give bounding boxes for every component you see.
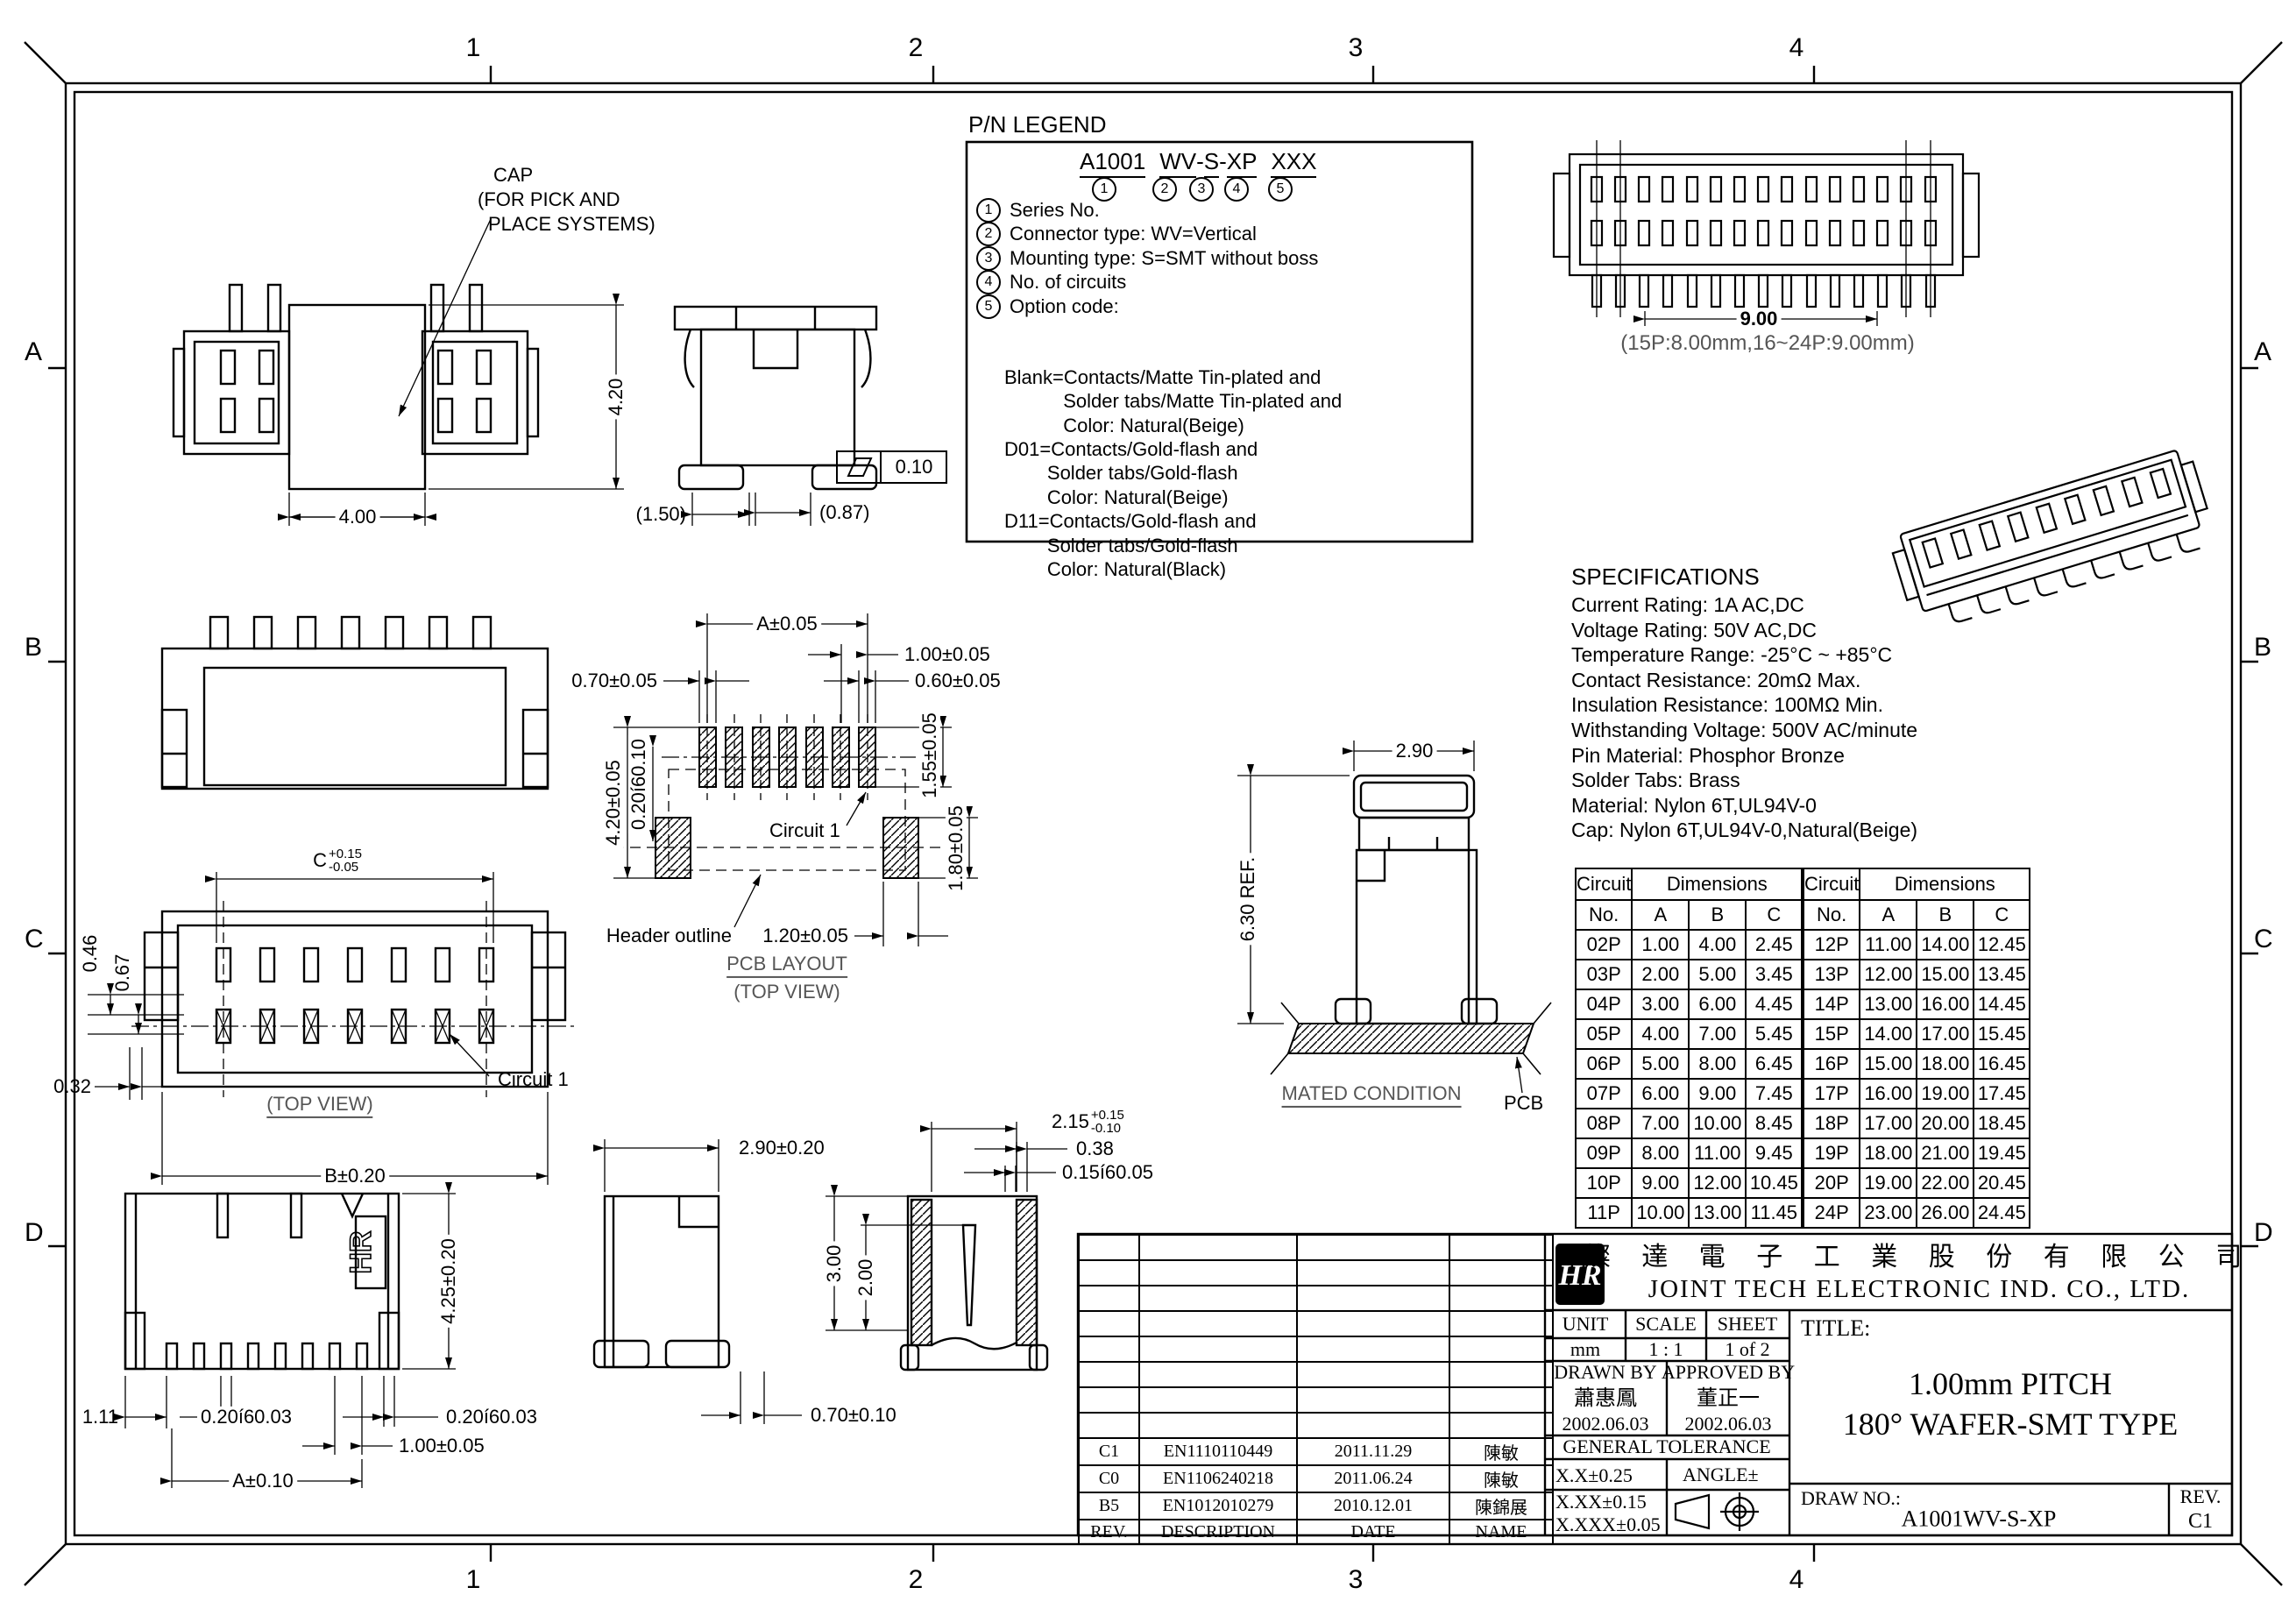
bottom-side-view: [594, 1196, 729, 1367]
long-connector-view: [1554, 140, 1979, 317]
flatness-value: 0.10: [896, 457, 933, 478]
top-view: [145, 911, 565, 1087]
dim-note: (15P:8.00mm,16~24P:9.00mm): [1620, 332, 1915, 355]
bottom-section-view: [901, 1196, 1047, 1370]
dim-label: 9.00: [1737, 308, 1782, 330]
table-row: 09P8.0011.009.45: [1576, 1138, 1802, 1168]
zone-letter: A: [2254, 337, 2271, 367]
table-row: 07P6.009.007.45: [1576, 1079, 1802, 1109]
revision-row: C1EN11101104492011.11.29陳敏: [1079, 1438, 1553, 1465]
revision-row: REV.DESCRIPTIONDATENAME: [1079, 1520, 1553, 1544]
revision-table: C1EN11101104492011.11.29陳敏C0EN1106240218…: [1078, 1234, 1554, 1545]
general-tolerance-label: GENERAL TOLERANCE: [1563, 1436, 1770, 1457]
dim-label: 1.00±0.05: [904, 644, 990, 665]
dim-label: B±0.20: [321, 1166, 389, 1187]
draw-no-value: A1001WV-S-XP: [1902, 1507, 2057, 1533]
view-caption: MATED CONDITION: [1282, 1083, 1462, 1108]
title-label: TITLE:: [1801, 1316, 1870, 1342]
dim-label: 3.00: [824, 1242, 845, 1286]
rev-value: C1: [2188, 1510, 2213, 1533]
table-row: 13P12.0015.0013.45: [1803, 960, 2030, 989]
table-row: 24P23.0026.0024.45: [1803, 1198, 2030, 1228]
dim-label: 4.25±0.20: [438, 1235, 459, 1328]
dim-label: C +0.15-0.05: [309, 847, 365, 874]
table-row: 17P16.0019.0017.45: [1803, 1079, 2030, 1109]
pn-legend-options: Blank=Contacts/Matte Tin-plated and Sold…: [1004, 317, 1342, 581]
dim-label: A±0.10: [229, 1471, 297, 1492]
dimensions-table-right: CircuitDimensions No.ABC 12P11.0014.0012…: [1803, 868, 2030, 1229]
view-caption: (TOP VIEW): [266, 1094, 372, 1118]
hr-marking: HR: [344, 1230, 378, 1273]
sheet-value: 1 of 2: [1725, 1339, 1769, 1360]
view-caption: (TOP VIEW): [733, 982, 840, 1003]
dim-label: 6.30 REF.: [1237, 854, 1258, 946]
table-row: 08P7.0010.008.45: [1576, 1109, 1802, 1138]
zone-number: 1: [466, 33, 481, 63]
dim-label: 2.15 +0.15-0.10: [1052, 1109, 1124, 1135]
zone-number: 3: [1349, 1565, 1364, 1595]
pn-segment: XXX: [1271, 149, 1316, 178]
dim-label: 0.20í60.10: [628, 735, 649, 833]
pin-slots-top: [1591, 177, 1936, 202]
dim-label: (1.50): [636, 504, 686, 525]
dim-label: 4.20: [606, 375, 627, 420]
zone-letter: B: [2254, 633, 2271, 663]
dim-label: 0.46: [80, 935, 101, 973]
cap-top-view: [174, 285, 538, 489]
dim-label: 1.20±0.05: [762, 925, 848, 946]
table-row: 03P2.005.003.45: [1576, 960, 1802, 989]
circuit-label: Circuit 1: [769, 820, 840, 841]
cap-callout: CAP: [493, 165, 533, 186]
pn-legend-items: 1Series No.2Connector type: WV=Vertical3…: [976, 198, 1318, 319]
dim-label: 1.55±0.05: [919, 709, 940, 802]
zone-number: 1: [466, 1565, 481, 1595]
zone-letter: D: [2254, 1218, 2273, 1248]
cap-side-view: [675, 307, 876, 489]
sheet-label: SHEET: [1718, 1314, 1777, 1335]
pn-segment: WV: [1159, 149, 1196, 178]
dim-label: 0.32: [53, 1076, 91, 1097]
table-row: 04P3.006.004.45: [1576, 989, 1802, 1019]
company-name-cn: 燦 達 電 子 工 業 股 份 有 限 公 司: [1584, 1243, 2255, 1272]
pcb-layout-view: [655, 727, 918, 878]
drawing-title: 1.00mm PITCH: [1909, 1367, 2112, 1402]
zone-number: 4: [1789, 33, 1804, 63]
zone-letter: C: [25, 925, 44, 954]
draw-no-label: DRAW NO.:: [1801, 1488, 1901, 1509]
dim-label: 0.60±0.05: [915, 670, 1001, 691]
table-row: 15P14.0017.0015.45: [1803, 1019, 2030, 1049]
dim-label: 2.00: [855, 1256, 876, 1301]
dim-label: 4.00: [336, 507, 380, 528]
pcb-label: PCB: [1504, 1093, 1543, 1114]
dim-label: 0.67: [112, 954, 133, 992]
dim-label: 0.70±0.10: [811, 1405, 896, 1426]
angle-tolerance-label: ANGLE±: [1683, 1464, 1759, 1485]
pn-segment: A1001: [1080, 149, 1145, 178]
pn-segment: XP: [1227, 149, 1258, 178]
dim-label: A±0.05: [753, 613, 821, 634]
scale-value: 1 : 1: [1648, 1339, 1683, 1360]
table-row: 19P18.0021.0019.45: [1803, 1138, 2030, 1168]
zone-number: 4: [1789, 1565, 1804, 1595]
table-row: 14P13.0016.0014.45: [1803, 989, 2030, 1019]
cap-top-view-dims: [289, 219, 624, 526]
dim-label: (0.87): [819, 502, 869, 523]
table-row: 05P4.007.005.45: [1576, 1019, 1802, 1049]
dim-label: 0.20í60.03: [443, 1407, 541, 1428]
projection-symbol-icon: [1676, 1492, 1759, 1531]
dim-label: 1.80±0.05: [946, 802, 967, 895]
drawn-date: 2002.06.03: [1563, 1414, 1649, 1435]
pin-slots-bottom: [1591, 221, 1936, 245]
specifications-lines: Current Rating: 1A AC,DCVoltage Rating: …: [1571, 592, 1917, 843]
zone-number: 3: [1349, 33, 1364, 63]
table-row: 16P15.0018.0016.45: [1803, 1049, 2030, 1079]
table-row: 12P11.0014.0012.45: [1803, 930, 2030, 960]
company-name-en: JOINT TECH ELECTRONIC IND. CO., LTD.: [1648, 1276, 2190, 1304]
isometric-view: [1889, 446, 2218, 634]
drawn-by-name: 蕭惠鳳: [1574, 1387, 1637, 1410]
unit-value: mm: [1570, 1339, 1600, 1360]
scale-label: SCALE: [1635, 1314, 1697, 1335]
tolerance-value: X.XXX±0.05: [1555, 1514, 1661, 1535]
dim-label: 2.90±0.20: [739, 1138, 825, 1159]
dim-label: 0.38: [1076, 1138, 1114, 1159]
zone-letter: B: [25, 633, 42, 663]
dim-label: 0.70±0.05: [571, 670, 657, 691]
zone-number: 2: [909, 1565, 924, 1595]
cap-callout: PLACE SYSTEMS): [488, 214, 655, 235]
zone-letter: C: [2254, 925, 2273, 954]
pn-legend-title: P/N LEGEND: [968, 112, 1107, 138]
dim-label: 4.20±0.05: [603, 756, 624, 849]
dim-label: 2.90: [1392, 741, 1437, 762]
approved-by-label: APPROVED BY: [1662, 1362, 1795, 1383]
table-row: 02P1.004.002.45: [1576, 930, 1802, 960]
zone-number: 2: [909, 33, 924, 63]
bottom-front-view: HR: [125, 1194, 399, 1369]
solder-pins: [1592, 275, 1935, 307]
revision-row: C0EN11062402182011.06.24陳敏: [1079, 1465, 1553, 1492]
drawing-title: 180° WAFER-SMT TYPE: [1843, 1407, 2178, 1442]
specifications-title: SPECIFICATIONS: [1571, 564, 1760, 590]
view-caption: PCB LAYOUT: [726, 953, 847, 978]
mated-condition-view: [1271, 776, 1551, 1074]
dim-label: 1.11: [82, 1407, 118, 1428]
drawn-by-label: DRAWN BY: [1554, 1362, 1656, 1383]
table-row: 20P19.0022.0020.45: [1803, 1168, 2030, 1198]
dim-label: 1.00±0.05: [399, 1435, 485, 1456]
rev-label: REV.: [2180, 1486, 2222, 1507]
tolerance-value: X.XX±0.15: [1555, 1492, 1647, 1513]
table-row: 06P5.008.006.45: [1576, 1049, 1802, 1079]
zone-letter: A: [25, 337, 42, 367]
pn-part-number: A1001 WV-S-XP XXX: [1080, 149, 1316, 178]
revision-row: B5EN10120102792010.12.01陳錦展: [1079, 1492, 1553, 1520]
tolerance-value: X.X±0.25: [1555, 1465, 1633, 1486]
table-row: 10P9.0012.0010.45: [1576, 1168, 1802, 1198]
header-outline-label: Header outline: [606, 925, 732, 946]
zone-letter: D: [25, 1218, 44, 1248]
dim-label: 0.15í60.05: [1062, 1162, 1153, 1183]
pn-segment: S: [1204, 149, 1219, 178]
dimensions-table-left: CircuitDimensions No.ABC 02P1.004.002.45…: [1575, 868, 1803, 1229]
table-row: 11P10.0013.0011.45: [1576, 1198, 1802, 1228]
dim-label: 0.20í60.03: [197, 1407, 295, 1428]
drawing-sheet: HR: [0, 0, 2296, 1623]
unit-label: UNIT: [1563, 1314, 1609, 1335]
table-row: 18P17.0020.0018.45: [1803, 1109, 2030, 1138]
approved-date: 2002.06.03: [1685, 1414, 1772, 1435]
front-view: [162, 617, 548, 789]
approved-by-name: 董正一: [1697, 1387, 1760, 1410]
cap-callout: (FOR PICK AND: [478, 189, 620, 210]
circuit-label: Circuit 1: [498, 1069, 569, 1090]
